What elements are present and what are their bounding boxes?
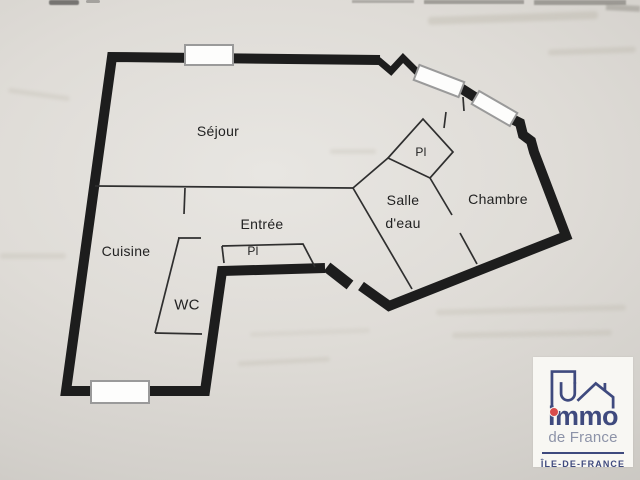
wc-wall-left	[155, 238, 179, 333]
exterior-wall-zigzag	[378, 58, 418, 73]
room-label-salle-eau-line2: d'eau	[385, 212, 420, 235]
logo-region-text: ÎLE-DE-FRANCE	[533, 459, 633, 469]
window-bottom-left	[91, 381, 149, 403]
pl-closet-tick	[444, 112, 446, 128]
immo-de-france-logo: immo de France ÎLE-DE-FRANCE	[533, 357, 633, 467]
logo-brand-text: immo	[533, 404, 633, 428]
room-label-wc: WC	[174, 297, 200, 314]
logo-red-dot-icon	[549, 407, 559, 417]
logo-divider	[542, 452, 624, 454]
interior-wall-chambre-lower	[460, 233, 477, 264]
room-label-cuisine: Cuisine	[102, 243, 151, 259]
room-label-salle-eau-line1: Salle	[385, 189, 420, 212]
logo-brand-subtext: de France	[533, 429, 633, 446]
interior-wall-sejour	[95, 186, 353, 188]
room-label-placard-entree: Pl	[247, 244, 258, 258]
room-label-entree: Entrée	[240, 216, 283, 232]
wc-wall-bottom	[155, 333, 202, 334]
pl-entree-tick	[222, 246, 224, 263]
interior-wall-salle-eau-top	[353, 158, 388, 188]
pl-entree-outline	[222, 244, 315, 267]
window-upper-right-2	[472, 91, 518, 126]
floorplan-photo: Séjour Cuisine Entrée Pl WC Pl Salle d'e…	[0, 0, 640, 480]
window-upper-right-1	[414, 65, 465, 97]
room-label-sejour: Séjour	[197, 123, 239, 139]
interior-wall-chambre-upper	[430, 178, 452, 215]
wall-tick	[463, 97, 464, 111]
exterior-wall-main	[66, 57, 380, 391]
interior-wall-cuisine-stub	[184, 188, 185, 214]
window-top	[185, 45, 233, 65]
room-label-salle-eau: Salle d'eau	[385, 189, 420, 235]
room-label-placard-chambre: Pl	[415, 145, 426, 159]
exterior-wall-door-jamb	[327, 267, 350, 285]
room-label-chambre: Chambre	[468, 191, 528, 207]
